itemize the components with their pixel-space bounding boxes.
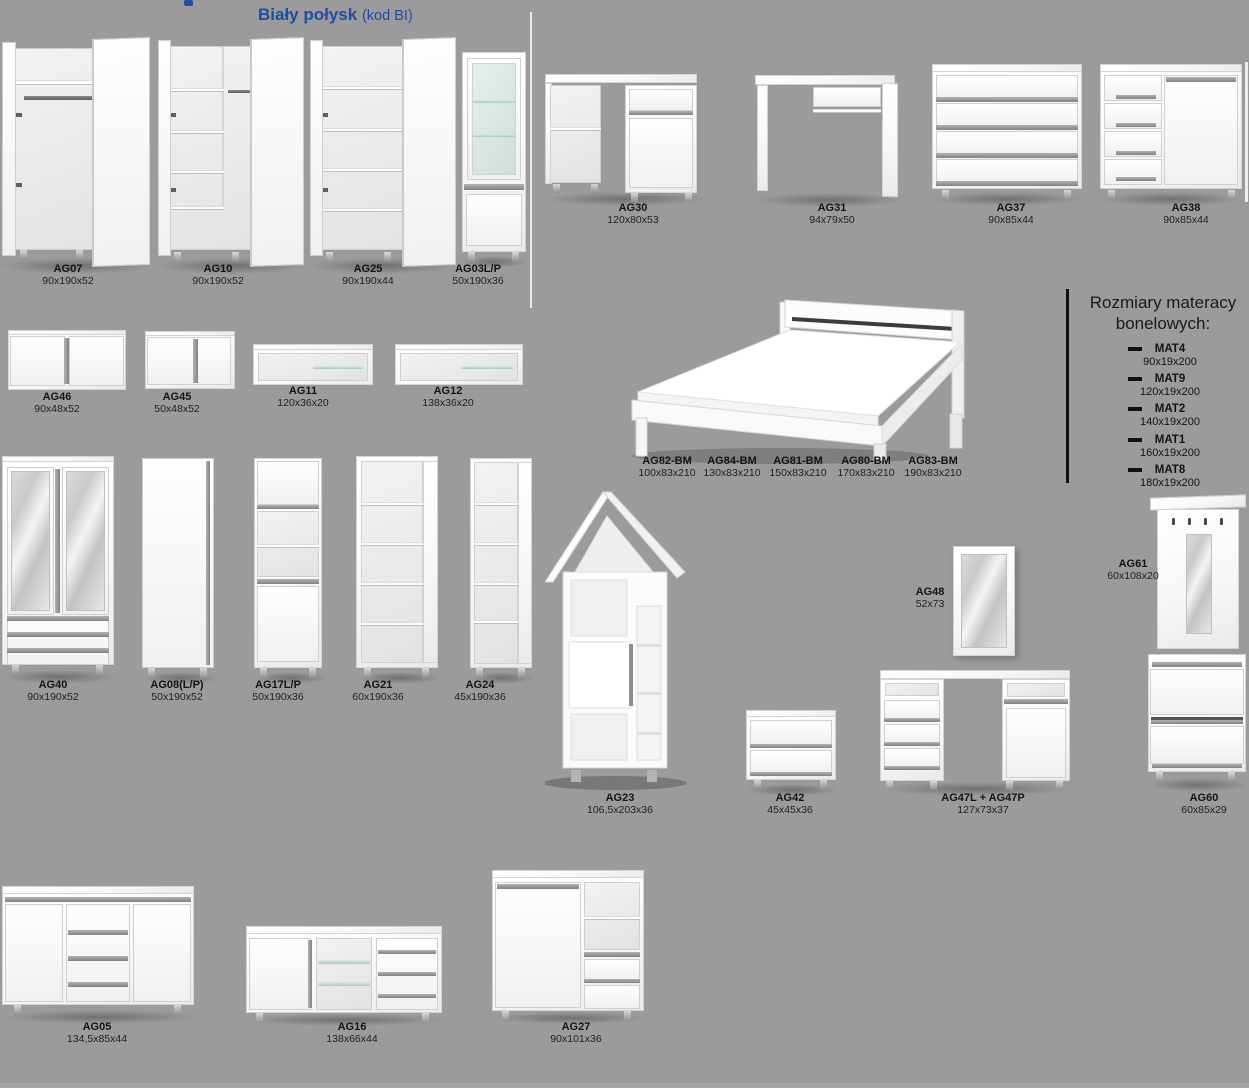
open-slot [885, 683, 939, 696]
ag31-desk-image [755, 75, 900, 203]
handle-strip [1152, 662, 1242, 667]
product-label-ag17: AG17L/P 50x190x36 [252, 679, 303, 703]
coat-hook [1188, 518, 1191, 525]
mattress-size-item: MAT2 140x19x200 [1100, 403, 1240, 429]
mattress-section-title: Rozmiary materacy bonelowych: [1078, 292, 1248, 334]
ag10-wardrobe-image [158, 38, 304, 272]
shelf [168, 130, 224, 134]
handle-strip [936, 153, 1078, 158]
leg [624, 1011, 631, 1021]
product-code: AG38 [1163, 202, 1209, 214]
product-code: AG11 [277, 385, 328, 397]
leg [631, 193, 638, 202]
handle-strip [68, 956, 128, 961]
handle-strip [7, 616, 109, 621]
product-code: AG31 [809, 202, 855, 214]
ag11-wall-shelf-image [253, 344, 373, 388]
handle-strip [68, 930, 128, 935]
leg [96, 665, 103, 675]
dash-bullet [1128, 377, 1142, 381]
product-label-ag05: AG05 134,5x85x44 [67, 1021, 127, 1045]
product-code: AG16 [326, 1021, 377, 1033]
ag03-display-cabinet-image [462, 52, 526, 268]
product-dims: 90x190x44 [342, 275, 393, 287]
handle-strip [1116, 151, 1156, 155]
door [69, 336, 124, 386]
door [257, 586, 319, 662]
handle-strip [1116, 95, 1156, 99]
shelf [257, 544, 319, 548]
open-slot [1007, 683, 1065, 697]
bed-drawing [630, 294, 965, 466]
leg [685, 193, 692, 202]
ag61-coat-rack-image [1150, 496, 1246, 656]
product-code: AG81-BM [769, 455, 826, 467]
flap-door [257, 461, 319, 505]
product-dims: 45x45x36 [767, 804, 813, 816]
product-dims: 134,5x85x44 [67, 1033, 127, 1045]
left-door [158, 40, 171, 256]
ag42-nightstand-image [746, 710, 838, 792]
mattress-dims: 160x19x200 [1100, 447, 1240, 460]
product-label-ag40: AG40 90x190x52 [27, 679, 78, 703]
leg [1064, 190, 1071, 200]
product-code: AG46 [34, 391, 80, 403]
side-panel [423, 461, 438, 663]
handle-strip [7, 632, 109, 637]
leg [476, 668, 483, 678]
product-code: AG07 [42, 263, 93, 275]
door [249, 938, 311, 1010]
leg [502, 1011, 509, 1021]
handle-strip [1152, 764, 1242, 768]
side-panel [757, 85, 768, 191]
door [5, 904, 63, 1002]
handle-strip [884, 742, 940, 746]
product-code: AG82-BM [638, 455, 695, 467]
drawer [750, 720, 832, 746]
flap-door [1150, 669, 1244, 715]
ag16-sideboard-image [246, 926, 444, 1020]
shelf [361, 622, 423, 626]
right-door [250, 37, 304, 267]
product-dims: 94x79x50 [809, 214, 855, 226]
mattress-size-item: MAT8 180x19x200 [1100, 464, 1240, 490]
leg [930, 781, 937, 790]
cropped-text-artifact [184, 0, 193, 6]
ag48-mirror-image [953, 546, 1017, 660]
desktop [755, 75, 895, 85]
mattress-section-rule [1066, 289, 1069, 483]
ag40-wardrobe-image [2, 456, 114, 682]
dash-bullet [1128, 407, 1142, 411]
leg [422, 668, 429, 678]
mattress-dims: 90x19x200 [1100, 356, 1240, 369]
ag25-wardrobe-image [310, 38, 456, 272]
product-code: AG08(L/P) [150, 679, 203, 691]
handle-strip [936, 125, 1078, 130]
door [1164, 75, 1238, 185]
glass-shelf [318, 960, 370, 964]
product-dims: 90x85x44 [988, 214, 1034, 226]
product-label-ag27: AG27 90x101x36 [550, 1021, 601, 1045]
product-dims: 150x83x210 [769, 467, 826, 479]
product-dims: 90x101x36 [550, 1033, 601, 1045]
handle-strip [64, 338, 69, 384]
shelf [474, 620, 518, 624]
shelf [474, 542, 518, 546]
mattress-size-item: MAT1 160x19x200 [1100, 434, 1240, 460]
product-code: AG61 [1107, 558, 1158, 570]
door [495, 882, 581, 1008]
product-dims: 90x190x52 [27, 691, 78, 703]
handle-strip [936, 181, 1078, 186]
product-label-ag42: AG42 45x45x36 [767, 792, 813, 816]
product-dims: 100x83x210 [638, 467, 695, 479]
ag08-wardrobe-image [142, 458, 218, 682]
handle-strip [1151, 720, 1243, 724]
handle-strip [55, 469, 60, 613]
ag17-cabinet-image [254, 458, 326, 682]
leg [12, 665, 19, 675]
ag30-desk-image [545, 72, 715, 202]
coat-hook [1220, 518, 1223, 525]
right-door [92, 37, 150, 267]
leg [1056, 781, 1063, 790]
shelf [361, 582, 423, 586]
leg [591, 184, 598, 193]
right-door [402, 37, 456, 267]
shelf [361, 542, 423, 546]
flap-door [1150, 726, 1244, 764]
product-code: AG24 [454, 679, 505, 691]
leg [20, 250, 27, 260]
leg [1156, 772, 1163, 782]
mattress-size-item: MAT4 90x19x200 [1100, 343, 1240, 369]
product-code: AG83-BM [904, 455, 961, 467]
handle-strip [206, 461, 210, 665]
product-dims: 170x83x210 [837, 467, 894, 479]
dash-bullet [1128, 347, 1142, 351]
section-divider-line [530, 12, 532, 308]
leg [174, 1005, 181, 1015]
product-label-ag81: AG81-BM 150x83x210 [769, 455, 826, 479]
leg [309, 668, 316, 678]
mirror [11, 471, 50, 611]
hinge [16, 113, 22, 117]
page-title: Biały połysk (kod BI) [258, 5, 413, 25]
leg [468, 252, 475, 262]
door [142, 458, 214, 668]
mattress-code: MAT1 [1100, 434, 1240, 447]
handle-strip [884, 766, 940, 770]
glass-shelf [313, 366, 363, 369]
ag21-bookcase-image [356, 456, 440, 682]
desktop [545, 74, 697, 83]
product-label-ag21: AG21 60x190x36 [352, 679, 403, 703]
product-code: AG45 [154, 391, 200, 403]
leg [200, 668, 207, 678]
leg [1228, 772, 1235, 782]
product-label-ag83: AG83-BM 190x83x210 [904, 455, 961, 479]
leg [76, 250, 83, 260]
product-label-ag25: AG25 90x190x44 [342, 263, 393, 287]
product-label-ag84: AG84-BM 130x83x210 [703, 455, 760, 479]
shelf [361, 502, 423, 506]
product-label-ag82: AG82-BM 100x83x210 [638, 455, 695, 479]
leg [942, 190, 949, 200]
mattress-code: MAT9 [1100, 373, 1240, 386]
shelf [550, 127, 601, 131]
leg [14, 1005, 21, 1015]
product-code: AG30 [607, 202, 658, 214]
leg [512, 252, 519, 262]
product-dims: 120x36x20 [277, 397, 328, 409]
finish-code: (kod BI) [362, 8, 413, 24]
product-dims: 50x190x52 [150, 691, 203, 703]
mirror [961, 554, 1007, 648]
mattress-size-item: MAT9 120x19x200 [1100, 373, 1240, 399]
product-code: AG27 [550, 1021, 601, 1033]
product-label-ag31: AG31 94x79x50 [809, 202, 855, 226]
handle-strip [750, 772, 832, 776]
product-label-ag60: AG60 60x85x29 [1181, 792, 1227, 816]
drawer [584, 959, 640, 981]
product-code: AG42 [767, 792, 813, 804]
product-label-ag30: AG30 120x80x53 [607, 202, 658, 226]
divider-panel [222, 46, 224, 206]
bed-image [630, 294, 965, 466]
drawer-block [66, 904, 130, 1002]
glass-pane [472, 63, 516, 175]
coat-hook [1204, 518, 1207, 525]
product-dims: 50x190x36 [252, 691, 303, 703]
product-label-ag61: AG61 60x108x20 [1107, 558, 1158, 582]
product-dims: 90x85x44 [1163, 214, 1209, 226]
handle-strip [378, 972, 436, 976]
open-compartment [316, 938, 372, 1010]
handle-strip [584, 952, 640, 957]
mirror [1186, 534, 1212, 634]
product-code: AG23 [587, 792, 653, 804]
product-dims: 138x66x44 [326, 1033, 377, 1045]
door [147, 337, 231, 385]
leg [174, 252, 181, 262]
ag24-bookcase-image [470, 458, 534, 682]
handle-strip [193, 339, 198, 383]
drawer [1104, 159, 1162, 185]
product-dims: 127x73x37 [941, 804, 1024, 816]
door [133, 904, 191, 1002]
leg [754, 780, 761, 789]
lower-door [466, 194, 522, 246]
vanity-top [880, 670, 1070, 679]
page-edge-line [1245, 62, 1248, 202]
handle-strip [750, 744, 832, 748]
product-code: AG37 [988, 202, 1034, 214]
mattress-dims: 120x19x200 [1100, 386, 1240, 399]
shelf [168, 170, 224, 174]
shelf [813, 109, 881, 113]
leg [518, 668, 525, 678]
product-label-ag24: AG24 45x190x36 [454, 679, 505, 703]
product-dims: 45x190x36 [454, 691, 505, 703]
mattress-dims: 180x19x200 [1100, 477, 1240, 490]
mattress-dims: 140x19x200 [1100, 416, 1240, 429]
ag12-wall-shelf-image [395, 344, 523, 388]
handle-strip [378, 994, 436, 998]
leg [1006, 781, 1013, 790]
interior [361, 461, 423, 663]
product-label-ag46: AG46 90x48x52 [34, 391, 80, 415]
ag27-cabinet-image [492, 870, 648, 1020]
product-code: AG25 [342, 263, 393, 275]
hinge [16, 183, 22, 187]
glass-shelf [461, 366, 513, 369]
drawer-block [7, 616, 109, 665]
handle-strip [1166, 77, 1236, 82]
product-dims: 138x36x20 [422, 397, 473, 409]
product-code: AG17L/P [252, 679, 303, 691]
finish-name: Biały połysk [258, 5, 357, 24]
product-label-ag03: AG03L/P 50x190x36 [452, 263, 503, 287]
mattress-code: MAT8 [1100, 464, 1240, 477]
handle-strip [257, 579, 319, 584]
interior [474, 462, 518, 664]
product-label-ag11: AG11 120x36x20 [277, 385, 328, 409]
handle-strip [629, 111, 693, 115]
product-label-ag10: AG10 90x190x52 [192, 263, 243, 287]
ag05-sideboard-image [2, 886, 196, 1020]
handle-strip [257, 505, 319, 509]
ag47-vanity-image [880, 666, 1072, 792]
product-label-ag07: AG07 90x190x52 [42, 263, 93, 287]
leg [886, 781, 893, 790]
product-dims: 52x73 [916, 598, 945, 610]
ag23-house-shelf-image [545, 486, 687, 792]
house-shelf-drawing [545, 486, 687, 792]
product-dims: 50x190x36 [452, 275, 503, 287]
leg [148, 668, 155, 678]
handle-strip [936, 97, 1078, 102]
product-label-ag80: AG80-BM 170x83x210 [837, 455, 894, 479]
leg [553, 184, 560, 193]
leg [384, 252, 391, 262]
glass-shelf [473, 134, 515, 137]
mattress-code: MAT4 [1100, 343, 1240, 356]
handle-strip [584, 979, 640, 983]
shelf [474, 582, 518, 586]
product-dims: 90x190x52 [192, 275, 243, 287]
leg [364, 668, 371, 678]
page-bottom-edge [0, 1083, 1249, 1088]
door [10, 336, 65, 386]
product-code: AG84-BM [703, 455, 760, 467]
product-label-ag08: AG08(L/P) 50x190x52 [150, 679, 203, 703]
leg [422, 1013, 429, 1023]
shelf [474, 502, 518, 506]
handle-strip [308, 940, 312, 1008]
handle-strip [497, 884, 579, 889]
product-code: AG03L/P [452, 263, 503, 275]
handle-strip [884, 718, 940, 722]
product-dims: 90x48x52 [34, 403, 80, 415]
coat-hook [1172, 518, 1175, 525]
handle-strip [68, 982, 128, 987]
handle-strip [378, 950, 436, 954]
ag37-chest-image [932, 64, 1082, 204]
ag46-wall-cabinet-image [8, 330, 126, 392]
side-panel [518, 462, 532, 664]
open-compartment [550, 85, 601, 183]
product-label-ag23: AG23 106,5x203x36 [587, 792, 653, 816]
product-dims: 60x190x36 [352, 691, 403, 703]
leg [260, 668, 267, 678]
handle-strip [7, 648, 109, 653]
left-door [2, 42, 16, 256]
leg [1108, 190, 1115, 200]
side-panel [882, 83, 898, 198]
product-label-ag37: AG37 90x85x44 [988, 202, 1034, 226]
product-label-ag38: AG38 90x85x44 [1163, 202, 1209, 226]
door [1006, 708, 1066, 778]
product-code: AG40 [27, 679, 78, 691]
left-door [310, 40, 323, 256]
product-dims: 60x108x20 [1107, 570, 1158, 582]
product-dims: 106,5x203x36 [587, 804, 653, 816]
leg [820, 780, 827, 789]
shelf [168, 206, 224, 210]
product-code: AG12 [422, 385, 473, 397]
handle-strip [1116, 177, 1156, 181]
product-label-ag16: AG16 138x66x44 [326, 1021, 377, 1045]
glass-shelf [318, 982, 370, 986]
mattress-code: MAT2 [1100, 403, 1240, 416]
leg [1228, 190, 1235, 200]
catalog-page: Biały połysk (kod BI) [0, 0, 1249, 1088]
ag38-dresser-image [1100, 64, 1242, 204]
glass-shelf [473, 100, 515, 103]
product-label-ag45: AG45 50x48x52 [154, 391, 200, 415]
product-code: AG05 [67, 1021, 127, 1033]
product-code: AG60 [1181, 792, 1227, 804]
product-label-ag48: AG48 52x73 [916, 586, 945, 610]
product-code: AG48 [916, 586, 945, 598]
door [629, 118, 693, 188]
ag60-shoe-cabinet-image [1148, 654, 1248, 790]
drawer [629, 89, 693, 111]
ag07-wardrobe-image [2, 38, 150, 272]
product-label-ag47: AG47L + AG47P 127x73x37 [941, 792, 1024, 816]
product-label-ag12: AG12 138x36x20 [422, 385, 473, 409]
drawer [813, 87, 881, 107]
handle-strip [1004, 699, 1068, 704]
dash-bullet [1128, 468, 1142, 472]
product-dims: 130x83x210 [703, 467, 760, 479]
product-code: AG80-BM [837, 455, 894, 467]
shelf [168, 88, 224, 92]
handle-strip [464, 184, 524, 190]
shelf [584, 916, 640, 920]
product-code: AG47L + AG47P [941, 792, 1024, 804]
drawer [584, 985, 640, 1009]
product-dims: 50x48x52 [154, 403, 200, 415]
product-code: AG21 [352, 679, 403, 691]
handle-strip [5, 897, 191, 902]
leg [326, 252, 333, 262]
handle-strip [1116, 123, 1156, 127]
leg [256, 1013, 263, 1023]
